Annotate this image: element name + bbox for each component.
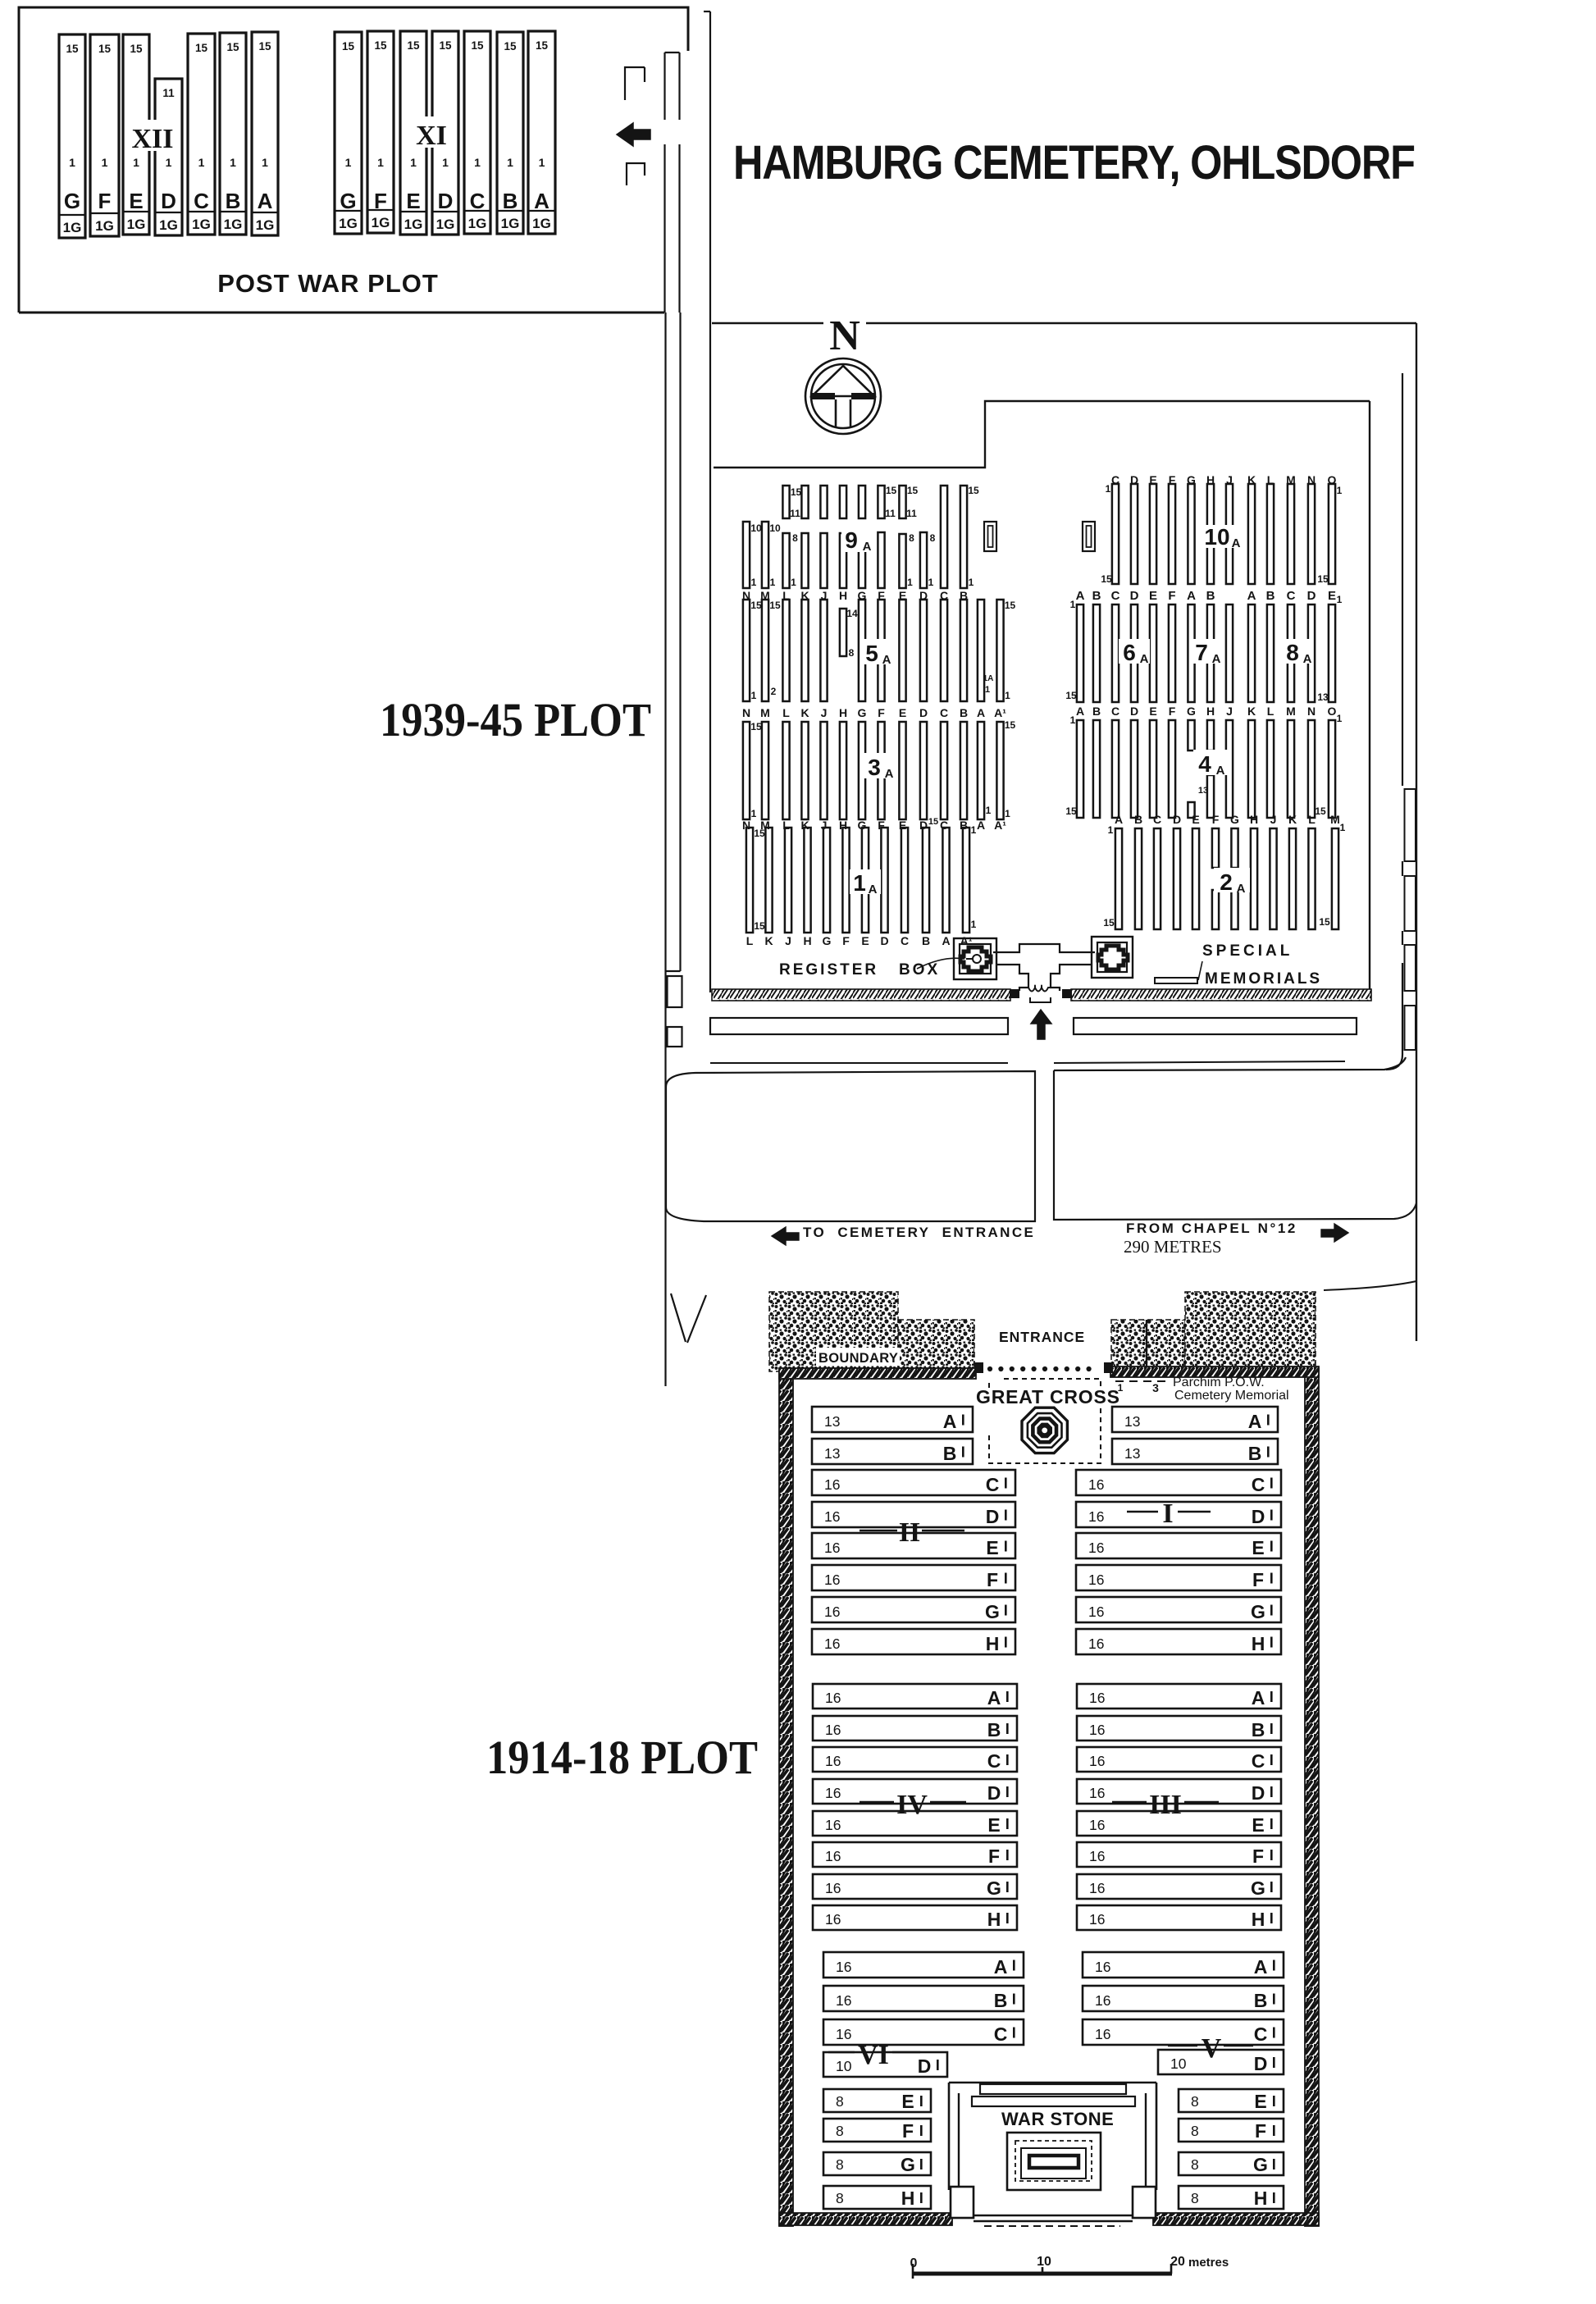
svg-text:16: 16 [825,1911,841,1928]
svg-text:8: 8 [849,647,855,659]
svg-text:16: 16 [1089,1880,1105,1896]
svg-text:15: 15 [1065,690,1077,701]
svg-text:F: F [1169,705,1176,718]
svg-text:K: K [800,706,809,719]
svg-text:B: B [987,1719,1001,1741]
svg-text:1: 1 [1106,483,1111,495]
svg-text:A: A [1076,589,1085,603]
svg-text:1: 1 [69,156,75,169]
svg-text:G: G [823,934,832,947]
svg-text:20: 20 [1170,2255,1185,2269]
svg-text:E: E [901,2091,914,2112]
svg-text:1: 1 [751,577,757,588]
svg-text:1: 1 [986,805,992,816]
svg-text:1G: 1G [339,216,358,231]
svg-text:M: M [760,706,770,719]
svg-text:10: 10 [1037,2255,1051,2269]
svg-text:L: L [1308,813,1316,826]
svg-text:1: 1 [442,156,449,169]
svg-text:G: G [987,1877,1001,1899]
svg-text:1: 1 [230,156,236,169]
svg-text:C: C [470,189,486,213]
svg-text:G: G [1187,705,1196,718]
svg-text:ENTRANCE: ENTRANCE [999,1329,1085,1345]
svg-text:E: E [986,1537,998,1558]
svg-text:H: H [839,589,847,602]
svg-text:E: E [899,706,906,719]
svg-text:N: N [742,706,750,719]
svg-text:A: A [1248,1411,1262,1432]
svg-text:A: A [882,653,891,667]
svg-text:16: 16 [825,1817,841,1833]
svg-text:0: 0 [910,2256,918,2270]
svg-text:H: H [1250,813,1258,826]
svg-text:A: A [942,934,950,947]
svg-text:A: A [534,189,549,213]
svg-text:13: 13 [824,1445,840,1462]
svg-text:16: 16 [1088,1636,1104,1652]
svg-text:1: 1 [928,577,934,588]
svg-text:15: 15 [536,39,549,52]
svg-text:15: 15 [504,40,517,52]
svg-text:G: G [985,1601,1000,1622]
svg-text:16: 16 [1088,1508,1104,1525]
svg-text:15: 15 [1317,573,1329,585]
svg-text:D: D [1130,589,1139,603]
svg-text:1G: 1G [436,217,455,232]
svg-text:1G: 1G [532,216,551,231]
svg-text:1: 1 [133,156,139,169]
svg-text:A: A [977,819,985,832]
svg-text:E: E [1192,813,1199,826]
svg-text:16: 16 [1088,1476,1104,1493]
svg-text:H: H [839,706,847,719]
svg-text:B: B [1254,1990,1268,2011]
svg-text:16: 16 [1089,1753,1105,1769]
svg-text:A: A [869,883,878,897]
svg-text:B: B [226,189,241,213]
svg-text:8: 8 [1191,2156,1199,2173]
svg-text:D: D [1130,705,1138,718]
svg-text:L: L [1267,705,1275,718]
svg-text:C: C [1254,2023,1268,2045]
svg-text:15: 15 [439,39,452,52]
svg-text:16: 16 [825,1722,841,1738]
svg-text:D: D [161,189,176,213]
svg-text:13: 13 [1124,1413,1140,1430]
svg-text:15: 15 [1319,916,1330,928]
svg-text:A: A [1076,705,1084,718]
svg-text:D: D [986,1506,1000,1527]
svg-text:1: 1 [1005,690,1010,701]
svg-text:8: 8 [836,2190,844,2206]
svg-text:16: 16 [1089,1848,1105,1864]
svg-text:A: A [885,767,894,781]
svg-text:1: 1 [770,577,776,588]
svg-text:1: 1 [971,824,977,836]
svg-text:8: 8 [1191,2093,1199,2110]
svg-text:16: 16 [825,1690,841,1706]
svg-text:1G: 1G [192,217,211,232]
svg-text:H: H [1252,1909,1265,1930]
svg-text:A: A [1303,652,1312,666]
svg-text:J: J [821,706,828,719]
svg-text:C: C [940,706,948,719]
svg-text:B: B [960,706,968,719]
svg-text:16: 16 [1095,1959,1110,1975]
svg-text:E: E [861,934,869,947]
svg-text:3: 3 [1152,1381,1159,1394]
svg-text:metres: metres [1188,2256,1229,2270]
svg-text:F: F [902,2120,914,2142]
svg-text:WAR STONE: WAR STONE [1001,2109,1114,2129]
svg-text:Cemetery Memorial: Cemetery Memorial [1174,1389,1289,1403]
svg-text:REGISTER BOX: REGISTER BOX [779,961,940,979]
svg-text:1G: 1G [372,215,390,230]
svg-text:1: 1 [751,690,757,701]
svg-text:C: C [940,819,948,832]
svg-text:H: H [1252,1633,1265,1654]
svg-text:1A: 1A [983,674,994,683]
svg-text:E: E [1149,589,1157,603]
svg-text:1G: 1G [127,217,146,232]
svg-text:15: 15 [1315,805,1326,817]
svg-text:A¹: A¹ [994,706,1006,719]
svg-text:A: A [1140,652,1149,666]
svg-text:15: 15 [195,42,208,54]
svg-text:E: E [987,1814,1000,1836]
svg-text:1G: 1G [63,220,82,235]
svg-text:G: G [1251,1877,1265,1899]
svg-text:F: F [1252,1845,1264,1867]
svg-text:1: 1 [1340,822,1346,833]
svg-text:B: B [1252,1719,1265,1741]
svg-text:E: E [1252,1814,1264,1836]
svg-text:POST WAR PLOT: POST WAR PLOT [217,269,439,298]
svg-text:16: 16 [825,1880,841,1896]
svg-text:16: 16 [1095,1992,1110,2009]
svg-text:15: 15 [886,485,897,496]
svg-text:L: L [746,934,754,947]
svg-text:16: 16 [836,1992,851,2009]
svg-text:B: B [922,934,930,947]
svg-text:C: C [1111,589,1120,603]
svg-text:11: 11 [906,508,917,519]
svg-text:5: 5 [865,641,878,666]
svg-text:16: 16 [825,1753,841,1769]
svg-text:G: G [340,189,356,213]
svg-text:GREAT CROSS: GREAT CROSS [976,1386,1120,1407]
svg-text:1: 1 [377,156,384,169]
svg-text:16: 16 [1088,1604,1104,1620]
svg-text:16: 16 [1089,1785,1105,1801]
svg-text:F: F [1255,2120,1266,2142]
svg-text:1: 1 [1337,713,1343,724]
svg-text:15: 15 [1101,573,1112,585]
svg-text:HAMBURG CEMETERY, OHLSDORF: HAMBURG CEMETERY, OHLSDORF [733,135,1415,189]
svg-text:15: 15 [750,721,762,732]
svg-text:1: 1 [474,156,481,169]
svg-text:1: 1 [971,919,977,930]
svg-text:E: E [129,189,143,213]
svg-text:1G: 1G [256,217,275,233]
svg-text:15: 15 [342,40,355,52]
svg-text:D: D [1252,1782,1265,1804]
svg-text:15: 15 [907,485,919,496]
svg-text:15: 15 [754,920,765,932]
svg-text:1: 1 [791,577,796,588]
svg-text:1: 1 [1337,594,1343,605]
svg-text:A: A [1212,652,1221,666]
svg-text:10: 10 [769,522,781,534]
svg-text:1: 1 [198,156,205,169]
svg-text:K: K [1247,705,1256,718]
svg-text:B: B [943,1443,957,1464]
svg-text:15: 15 [750,600,762,611]
svg-text:16: 16 [824,1572,840,1588]
svg-text:15: 15 [374,39,387,52]
svg-text:XII: XII [131,124,173,154]
svg-text:1: 1 [1005,808,1010,819]
svg-text:B: B [1092,705,1101,718]
svg-text:1: 1 [985,685,990,695]
svg-text:16: 16 [824,1636,840,1652]
svg-text:A: A [1252,1687,1265,1709]
svg-text:15: 15 [968,485,979,496]
svg-text:1: 1 [853,870,866,896]
svg-text:E: E [899,819,906,832]
svg-text:M: M [1330,813,1340,826]
svg-text:A: A [943,1411,957,1432]
svg-text:16: 16 [1089,1722,1105,1738]
svg-text:10: 10 [1204,524,1229,550]
svg-text:F: F [1212,813,1220,826]
svg-text:8: 8 [930,532,936,544]
svg-text:15: 15 [66,43,79,55]
svg-text:1: 1 [1070,714,1076,726]
svg-text:E: E [406,189,420,213]
svg-text:16: 16 [1088,1540,1104,1556]
svg-text:10: 10 [750,522,762,534]
svg-text:15: 15 [226,41,239,53]
svg-text:C: C [986,1474,1000,1495]
svg-text:C: C [1252,1750,1265,1772]
svg-text:16: 16 [824,1508,840,1525]
svg-text:15: 15 [407,39,420,52]
svg-text:A: A [1115,813,1123,826]
svg-text:15: 15 [1103,917,1115,928]
svg-text:E: E [1254,2091,1266,2112]
svg-text:VI: VI [858,2040,889,2070]
svg-text:E: E [1149,705,1156,718]
svg-text:13: 13 [1317,691,1329,703]
svg-text:A: A [994,1956,1008,1978]
svg-text:C: C [994,2023,1008,2045]
svg-text:15: 15 [1065,805,1077,817]
svg-text:TO CEMETERY ENTRANCE: TO CEMETERY ENTRANCE [803,1225,1035,1240]
svg-text:K: K [764,934,773,947]
svg-text:F: F [988,1845,1000,1867]
svg-text:16: 16 [836,2026,851,2042]
svg-text:E: E [1328,589,1336,603]
svg-text:10: 10 [836,2058,852,2074]
svg-text:1: 1 [1108,824,1114,836]
svg-text:C: C [194,189,209,213]
svg-text:13: 13 [824,1413,840,1430]
svg-text:8: 8 [836,2093,844,2110]
svg-text:1: 1 [166,156,172,169]
svg-text:15: 15 [258,40,271,52]
svg-text:1: 1 [345,156,352,169]
svg-text:8: 8 [792,532,798,544]
svg-text:1: 1 [969,577,974,588]
svg-text:6: 6 [1123,640,1136,665]
svg-text:C: C [1252,1474,1265,1495]
svg-text:G: G [1230,813,1239,826]
svg-text:H: H [986,1633,1000,1654]
svg-text:1: 1 [262,156,268,169]
svg-text:15: 15 [928,817,938,827]
svg-text:A¹: A¹ [994,819,1006,832]
svg-text:16: 16 [1088,1572,1104,1588]
svg-text:J: J [785,934,791,947]
svg-text:IV: IV [896,1790,928,1820]
svg-text:Parchim P.O.W.: Parchim P.O.W. [1173,1376,1265,1389]
svg-text:16: 16 [825,1848,841,1864]
svg-text:D: D [919,706,928,719]
svg-text:4: 4 [1198,751,1211,777]
svg-text:D: D [918,2055,932,2077]
svg-text:B: B [1134,813,1142,826]
svg-text:D: D [1254,2053,1268,2074]
svg-text:J: J [1226,705,1233,718]
svg-text:D: D [880,934,888,947]
svg-text:D: D [1252,1506,1265,1527]
svg-text:16: 16 [1089,1817,1105,1833]
svg-text:N: N [1307,705,1316,718]
svg-text:H: H [803,934,811,947]
svg-text:O: O [1328,705,1337,718]
svg-text:A: A [987,1687,1001,1709]
svg-text:H: H [987,1909,1001,1930]
svg-text:9: 9 [845,527,858,553]
svg-text:16: 16 [824,1604,840,1620]
svg-text:16: 16 [825,1785,841,1801]
svg-text:B: B [994,1990,1008,2011]
svg-text:1: 1 [751,808,757,819]
svg-text:D: D [1307,589,1316,603]
svg-text:1939-45 PLOT: 1939-45 PLOT [380,693,651,746]
svg-text:1: 1 [1118,1382,1124,1394]
svg-text:BOUNDARY: BOUNDARY [819,1351,898,1366]
svg-text:15: 15 [130,43,143,55]
svg-text:15: 15 [471,39,484,52]
svg-text:B: B [1266,589,1275,603]
svg-text:14: 14 [846,608,858,619]
svg-text:8: 8 [836,2123,844,2139]
svg-text:C: C [901,934,909,947]
svg-text:F: F [987,1569,998,1590]
svg-text:11: 11 [885,508,896,519]
svg-text:F: F [1168,589,1175,603]
svg-text:III: III [1149,1790,1182,1820]
svg-text:11: 11 [790,508,800,519]
svg-text:8: 8 [1191,2123,1199,2139]
svg-text:3: 3 [868,755,881,780]
svg-text:A¹: A¹ [960,934,973,947]
svg-text:G: G [858,706,867,719]
svg-text:15: 15 [1005,719,1016,731]
svg-text:G: G [64,189,80,213]
svg-text:F: F [842,934,850,947]
svg-text:H: H [901,2188,915,2209]
svg-text:A: A [977,706,985,719]
svg-text:16: 16 [1089,1690,1105,1706]
svg-text:L: L [782,819,790,832]
svg-text:1: 1 [907,577,913,588]
svg-text:F: F [1252,1569,1264,1590]
svg-text:16: 16 [824,1476,840,1493]
svg-text:B: B [503,189,518,213]
svg-text:A: A [863,540,872,554]
svg-text:1: 1 [1337,485,1343,496]
svg-text:1G: 1G [95,218,114,234]
svg-text:15: 15 [791,486,802,498]
svg-text:10: 10 [1170,2055,1187,2072]
svg-text:II: II [899,1517,920,1548]
svg-text:1G: 1G [404,217,423,232]
svg-text:C: C [1153,813,1161,826]
svg-text:1: 1 [507,156,513,169]
svg-text:8: 8 [909,532,914,544]
svg-text:G: G [1253,2154,1268,2175]
svg-text:D: D [438,189,454,213]
svg-text:H: H [1206,705,1215,718]
svg-text:D: D [987,1782,1001,1804]
svg-text:H: H [1254,2188,1268,2209]
svg-text:1G: 1G [224,217,243,232]
svg-text:SPECIAL: SPECIAL [1202,942,1293,960]
svg-text:A: A [1187,589,1196,603]
svg-text:16: 16 [824,1540,840,1556]
svg-text:A: A [1254,1956,1268,1978]
svg-text:A: A [1216,764,1225,778]
svg-text:D: D [1173,813,1181,826]
svg-text:B: B [1092,589,1101,603]
svg-text:1G: 1G [501,216,520,231]
svg-text:N: N [829,313,860,359]
svg-text:13: 13 [1198,786,1208,796]
svg-text:15: 15 [1005,600,1016,611]
svg-text:1914-18 PLOT: 1914-18 PLOT [486,1731,758,1784]
svg-text:L: L [782,706,790,719]
svg-text:C: C [1287,589,1296,603]
svg-text:8: 8 [1191,2190,1199,2206]
svg-text:1G: 1G [159,217,178,233]
svg-text:G: G [901,2154,915,2175]
svg-text:1: 1 [1070,599,1076,610]
svg-text:I: I [1162,1499,1173,1529]
svg-text:1G: 1G [468,216,487,231]
svg-text:C: C [987,1750,1001,1772]
svg-text:15: 15 [769,600,781,611]
svg-text:B: B [1206,589,1215,603]
svg-text:G: G [1251,1601,1265,1622]
svg-text:F: F [878,706,885,719]
svg-text:8: 8 [1286,640,1299,665]
svg-text:16: 16 [1089,1911,1105,1928]
svg-text:A: A [258,189,273,213]
